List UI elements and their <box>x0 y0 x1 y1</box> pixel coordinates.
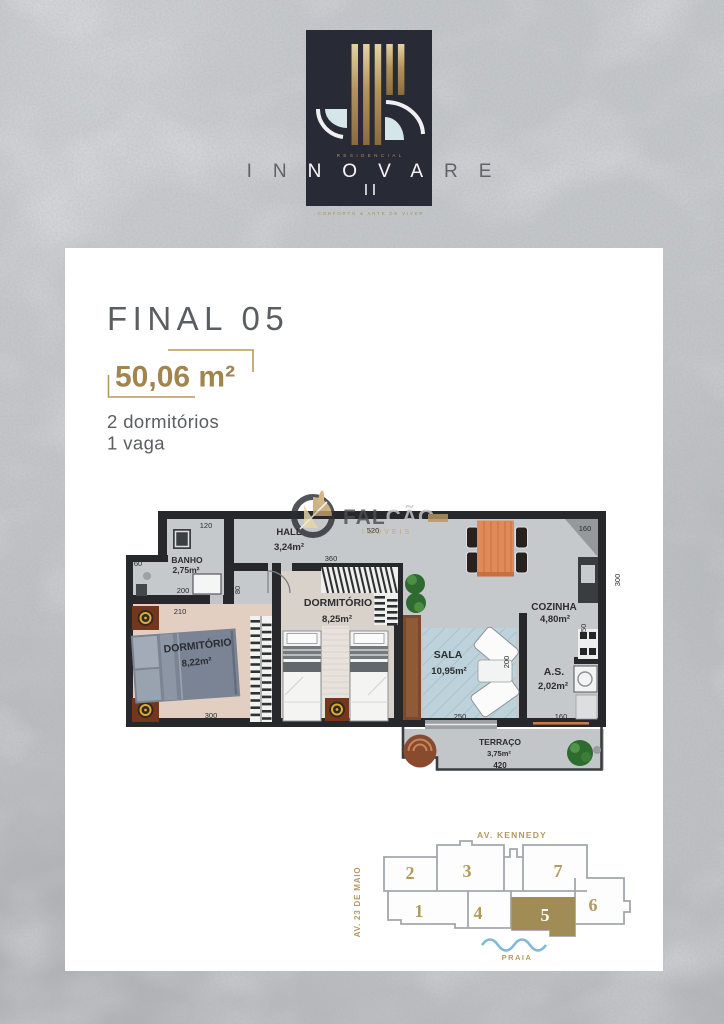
svg-text:TERRAÇO: TERRAÇO <box>479 737 521 747</box>
svg-text:II: II <box>364 182 380 199</box>
svg-text:PRAIA: PRAIA <box>502 953 533 962</box>
svg-text:80: 80 <box>233 586 242 594</box>
svg-text:RESIDENCIAL: RESIDENCIAL <box>337 153 405 158</box>
svg-text:8,25m²: 8,25m² <box>322 614 352 625</box>
svg-text:5: 5 <box>541 905 550 925</box>
svg-text:200: 200 <box>502 656 511 669</box>
svg-text:4,80m²: 4,80m² <box>540 614 570 625</box>
svg-text:A.S.: A.S. <box>544 666 565 678</box>
svg-text:360: 360 <box>325 554 338 563</box>
svg-text:160: 160 <box>579 524 592 533</box>
svg-text:4: 4 <box>474 903 483 923</box>
svg-text:6: 6 <box>589 895 598 915</box>
svg-text:420: 420 <box>493 761 507 770</box>
svg-text:FALCÃO: FALCÃO <box>343 506 435 529</box>
svg-text:3,24m²: 3,24m² <box>274 542 304 553</box>
svg-text:AV. 23 DE MAIO: AV. 23 DE MAIO <box>353 867 362 938</box>
svg-text:3,75m²: 3,75m² <box>487 749 511 758</box>
svg-text:BANHO: BANHO <box>171 555 203 565</box>
svg-text:2,75m²: 2,75m² <box>173 565 200 575</box>
svg-text:3: 3 <box>463 861 472 881</box>
svg-text:COZINHA: COZINHA <box>531 602 577 613</box>
svg-text:210: 210 <box>174 607 187 616</box>
svg-text:250: 250 <box>454 712 467 721</box>
svg-text:2 dormitórios: 2 dormitórios <box>107 411 219 432</box>
svg-text:60: 60 <box>134 559 142 568</box>
svg-text:7: 7 <box>554 861 563 881</box>
svg-text:170: 170 <box>225 564 234 577</box>
svg-text:2,02m²: 2,02m² <box>538 681 568 692</box>
svg-text:1: 1 <box>415 901 424 921</box>
svg-text:200: 200 <box>177 586 190 595</box>
svg-text:DORMITÓRIO: DORMITÓRIO <box>304 596 372 609</box>
svg-text:120: 120 <box>200 521 213 530</box>
svg-text:1 vaga: 1 vaga <box>107 433 165 454</box>
svg-text:2: 2 <box>406 863 415 883</box>
svg-text:AV. KENNEDY: AV. KENNEDY <box>477 830 547 840</box>
svg-text:SALA: SALA <box>434 649 463 661</box>
svg-text:300: 300 <box>205 711 218 720</box>
svg-text:160: 160 <box>555 712 568 721</box>
svg-text:IMÓVEIS: IMÓVEIS <box>362 527 412 536</box>
svg-text:300: 300 <box>613 574 622 587</box>
svg-text:250: 250 <box>579 624 588 637</box>
svg-text:CONFORTO & ARTE DE VIVER: CONFORTO & ARTE DE VIVER <box>318 211 425 216</box>
svg-text:FINAL 05: FINAL 05 <box>107 300 289 337</box>
svg-text:50,06 m²: 50,06 m² <box>115 361 235 394</box>
svg-text:10,95m²: 10,95m² <box>431 666 466 677</box>
